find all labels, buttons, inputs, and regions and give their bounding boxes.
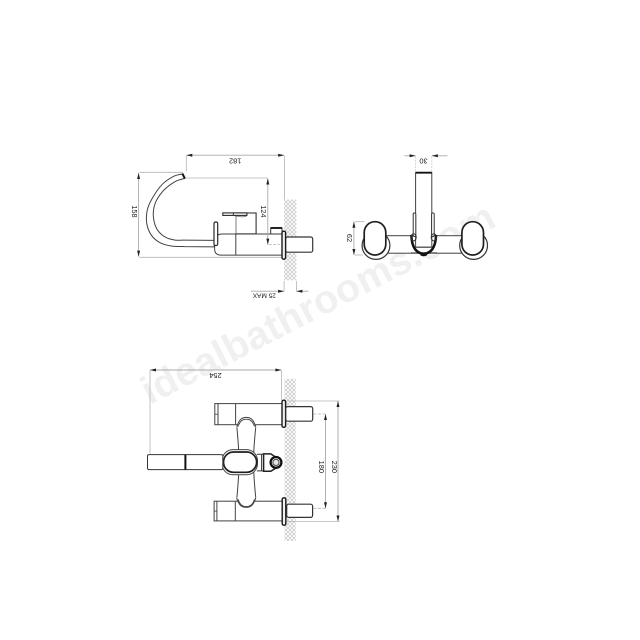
svg-text:62: 62 (345, 234, 354, 242)
svg-text:30: 30 (419, 156, 427, 165)
svg-text:182: 182 (229, 156, 241, 165)
svg-text:254: 254 (209, 371, 221, 380)
svg-text:124: 124 (259, 205, 268, 217)
svg-text:230: 230 (330, 461, 339, 473)
svg-text:158: 158 (130, 205, 139, 217)
svg-text:25 MAX: 25 MAX (252, 291, 276, 298)
svg-text:180: 180 (317, 461, 326, 473)
